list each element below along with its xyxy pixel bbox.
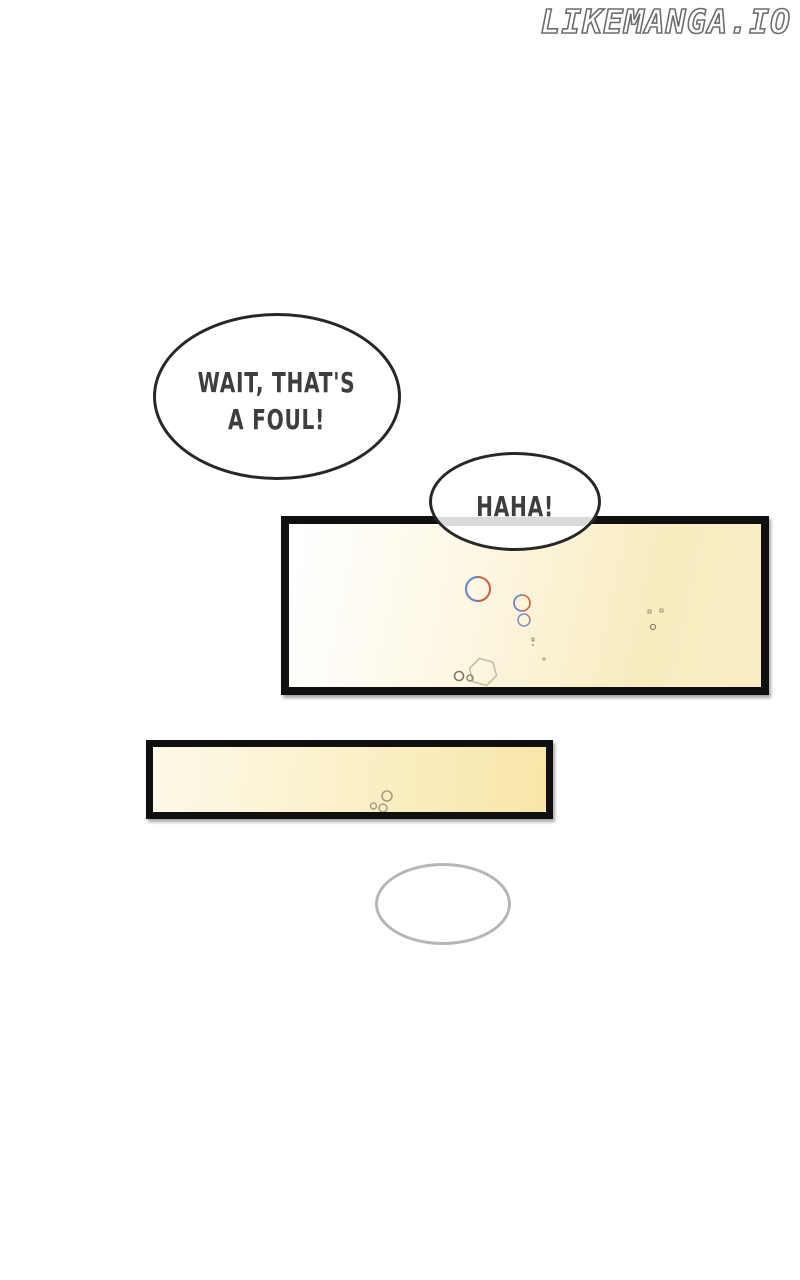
fizz-bubble-p2-small-2 [379,804,387,812]
speech-bubble-haha: HAHA! [429,452,601,551]
speech-text-foul: WAIT, THAT'S A FOUL! [198,356,356,438]
fizz-bubble-right-small [650,624,655,629]
panel-2 [146,740,553,819]
fizz-speck-2 [532,644,534,646]
site-watermark: LIKEMANGA.IO [526,0,796,46]
fizz-bubble-bottom-small-1 [455,672,464,681]
watermark-text: LIKEMANGA.IO [541,2,791,41]
fizz-speck-right-1 [648,610,651,613]
fizz-bubbles-svg-panel2 [153,747,546,812]
fizz-bubble-p2-small-1 [371,803,377,809]
speech-text-haha: HAHA! [476,480,554,523]
fizz-bubble-small-red-arc [527,615,530,621]
fizz-speck-3 [543,658,545,660]
empty-speech-bubble [375,863,511,945]
fizz-bubble-large-red-arc [478,577,490,601]
manga-page: LIKEMANGA.IO WAIT, THAT'S A FOUL! [0,0,800,1280]
fizz-bubble-medium-red-arc [522,595,530,611]
fizz-speck-1 [532,638,534,641]
speech-text-foul-line1: WAIT, THAT'S [198,364,356,401]
fizz-speck-right-2 [660,609,663,612]
fizz-bubble-large-blue-arc [466,577,478,601]
fizz-bubble-hexagon [470,659,497,686]
fizz-bubble-medium-blue-arc [514,595,522,611]
fizz-bubble-p2-large [382,791,392,801]
speech-bubble-foul: WAIT, THAT'S A FOUL! [153,313,401,480]
speech-text-foul-line2: A FOUL! [198,401,356,438]
